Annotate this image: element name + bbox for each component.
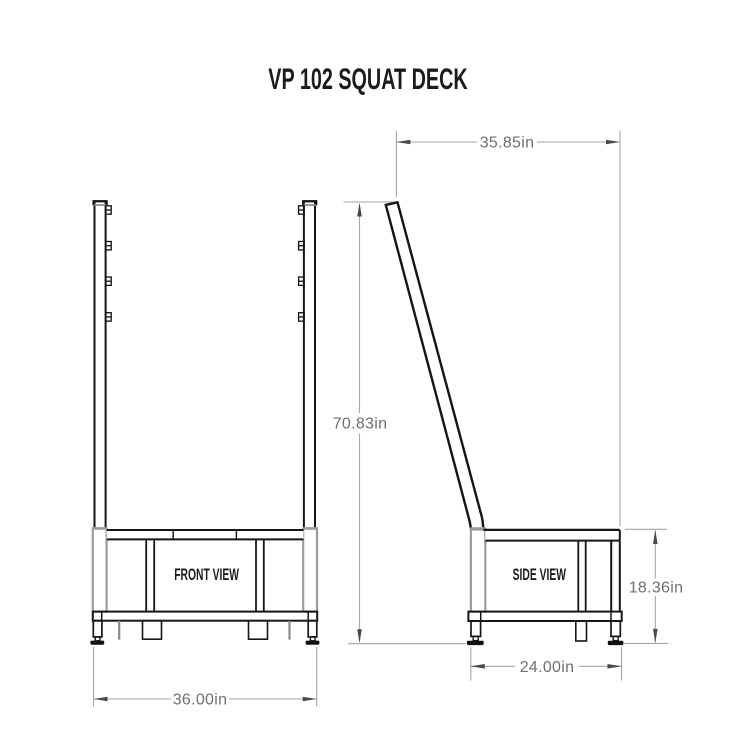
svg-text:36.00in: 36.00in: [173, 692, 228, 709]
svg-text:VP 102 SQUAT DECK: VP 102 SQUAT DECK: [268, 63, 468, 96]
svg-text:SIDE VIEW: SIDE VIEW: [513, 565, 566, 583]
svg-text:18.36in: 18.36in: [629, 580, 684, 597]
svg-text:FRONT VIEW: FRONT VIEW: [174, 565, 239, 583]
svg-text:24.00in: 24.00in: [520, 659, 575, 676]
svg-text:35.85in: 35.85in: [480, 135, 535, 152]
svg-text:70.83in: 70.83in: [333, 416, 388, 433]
